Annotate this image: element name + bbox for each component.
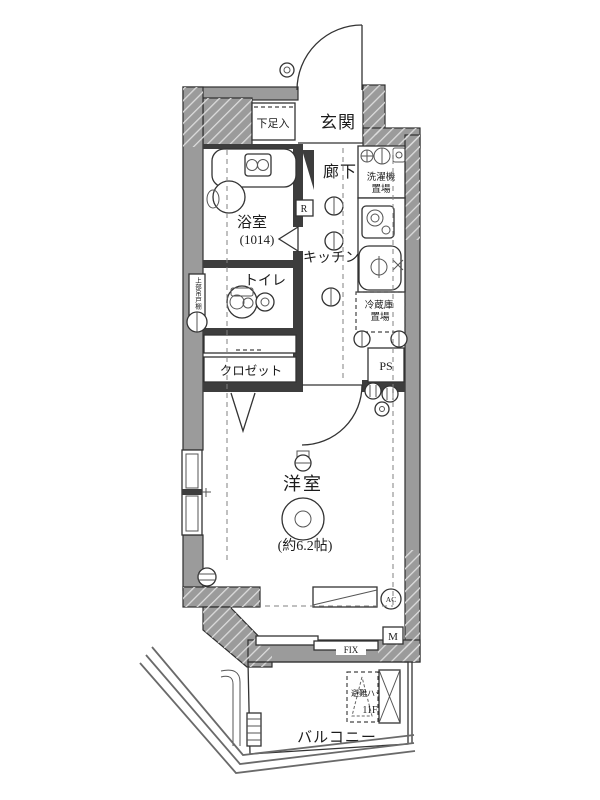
closet-label: クロゼット	[220, 364, 283, 378]
bathroom-size: (1014)	[240, 232, 275, 247]
kitchen-area: 洗濯機 置場 キッチン 冷蔵庫 置場 PS	[303, 146, 407, 382]
closet-door-mark	[231, 393, 255, 431]
floorplan-svg: 下足入 玄関 廊下 R 浴室 (1014) トイレ 上部吊戸棚	[0, 0, 600, 800]
drain-pipe	[221, 670, 240, 746]
ceiling-light-icon	[282, 498, 324, 540]
western-room-label: 洋室	[283, 474, 323, 494]
refrigerator-label1: 冷蔵庫	[365, 299, 394, 311]
entrance-area: 下足入 玄関	[252, 25, 363, 143]
outlet-icon	[198, 568, 216, 586]
corner-basin	[256, 293, 274, 311]
sliding-window	[256, 636, 318, 645]
refrigerator-space	[356, 292, 405, 332]
washbasin	[213, 181, 245, 213]
meter-label: M	[388, 631, 398, 643]
drain-grate	[247, 713, 261, 746]
toilet-area: トイレ 上部吊戸棚	[187, 274, 286, 332]
entrance-door-arc	[297, 25, 362, 90]
floor-plan: 下足入 玄関 廊下 R 浴室 (1014) トイレ 上部吊戸棚	[0, 0, 600, 800]
ac-label: AC	[386, 595, 396, 604]
shoe-storage-label: 下足入	[257, 118, 290, 130]
kitchen-label: キッチン	[303, 251, 359, 266]
bathroom-label: 浴室	[237, 214, 267, 231]
evacuation-hatch-label2: 11F	[362, 705, 378, 716]
fix-window-label: FIX	[344, 645, 359, 655]
shaft-wedge	[302, 150, 314, 190]
r-box-label: R	[301, 204, 308, 215]
left-window	[182, 450, 211, 535]
western-room-size: (約6.2帖)	[278, 538, 333, 554]
hallway-area: 廊下 R	[296, 163, 357, 306]
washing-machine-label1: 洗濯機	[367, 171, 396, 183]
pipe-space-label: PS	[379, 359, 392, 373]
bathroom-door-mark	[279, 227, 298, 251]
refrigerator-label2: 置場	[370, 311, 390, 323]
washing-machine-label2: 置場	[371, 183, 391, 195]
balcony-area: 避難ハッチ 11F バルコニー	[140, 647, 415, 773]
hallway-label: 廊下	[323, 163, 357, 181]
room-door-arc	[302, 385, 362, 445]
doorbell-icon	[280, 63, 294, 77]
toilet-label: トイレ	[244, 274, 286, 289]
entrance-label: 玄関	[320, 113, 356, 132]
bathroom-area: 浴室 (1014)	[207, 149, 298, 251]
